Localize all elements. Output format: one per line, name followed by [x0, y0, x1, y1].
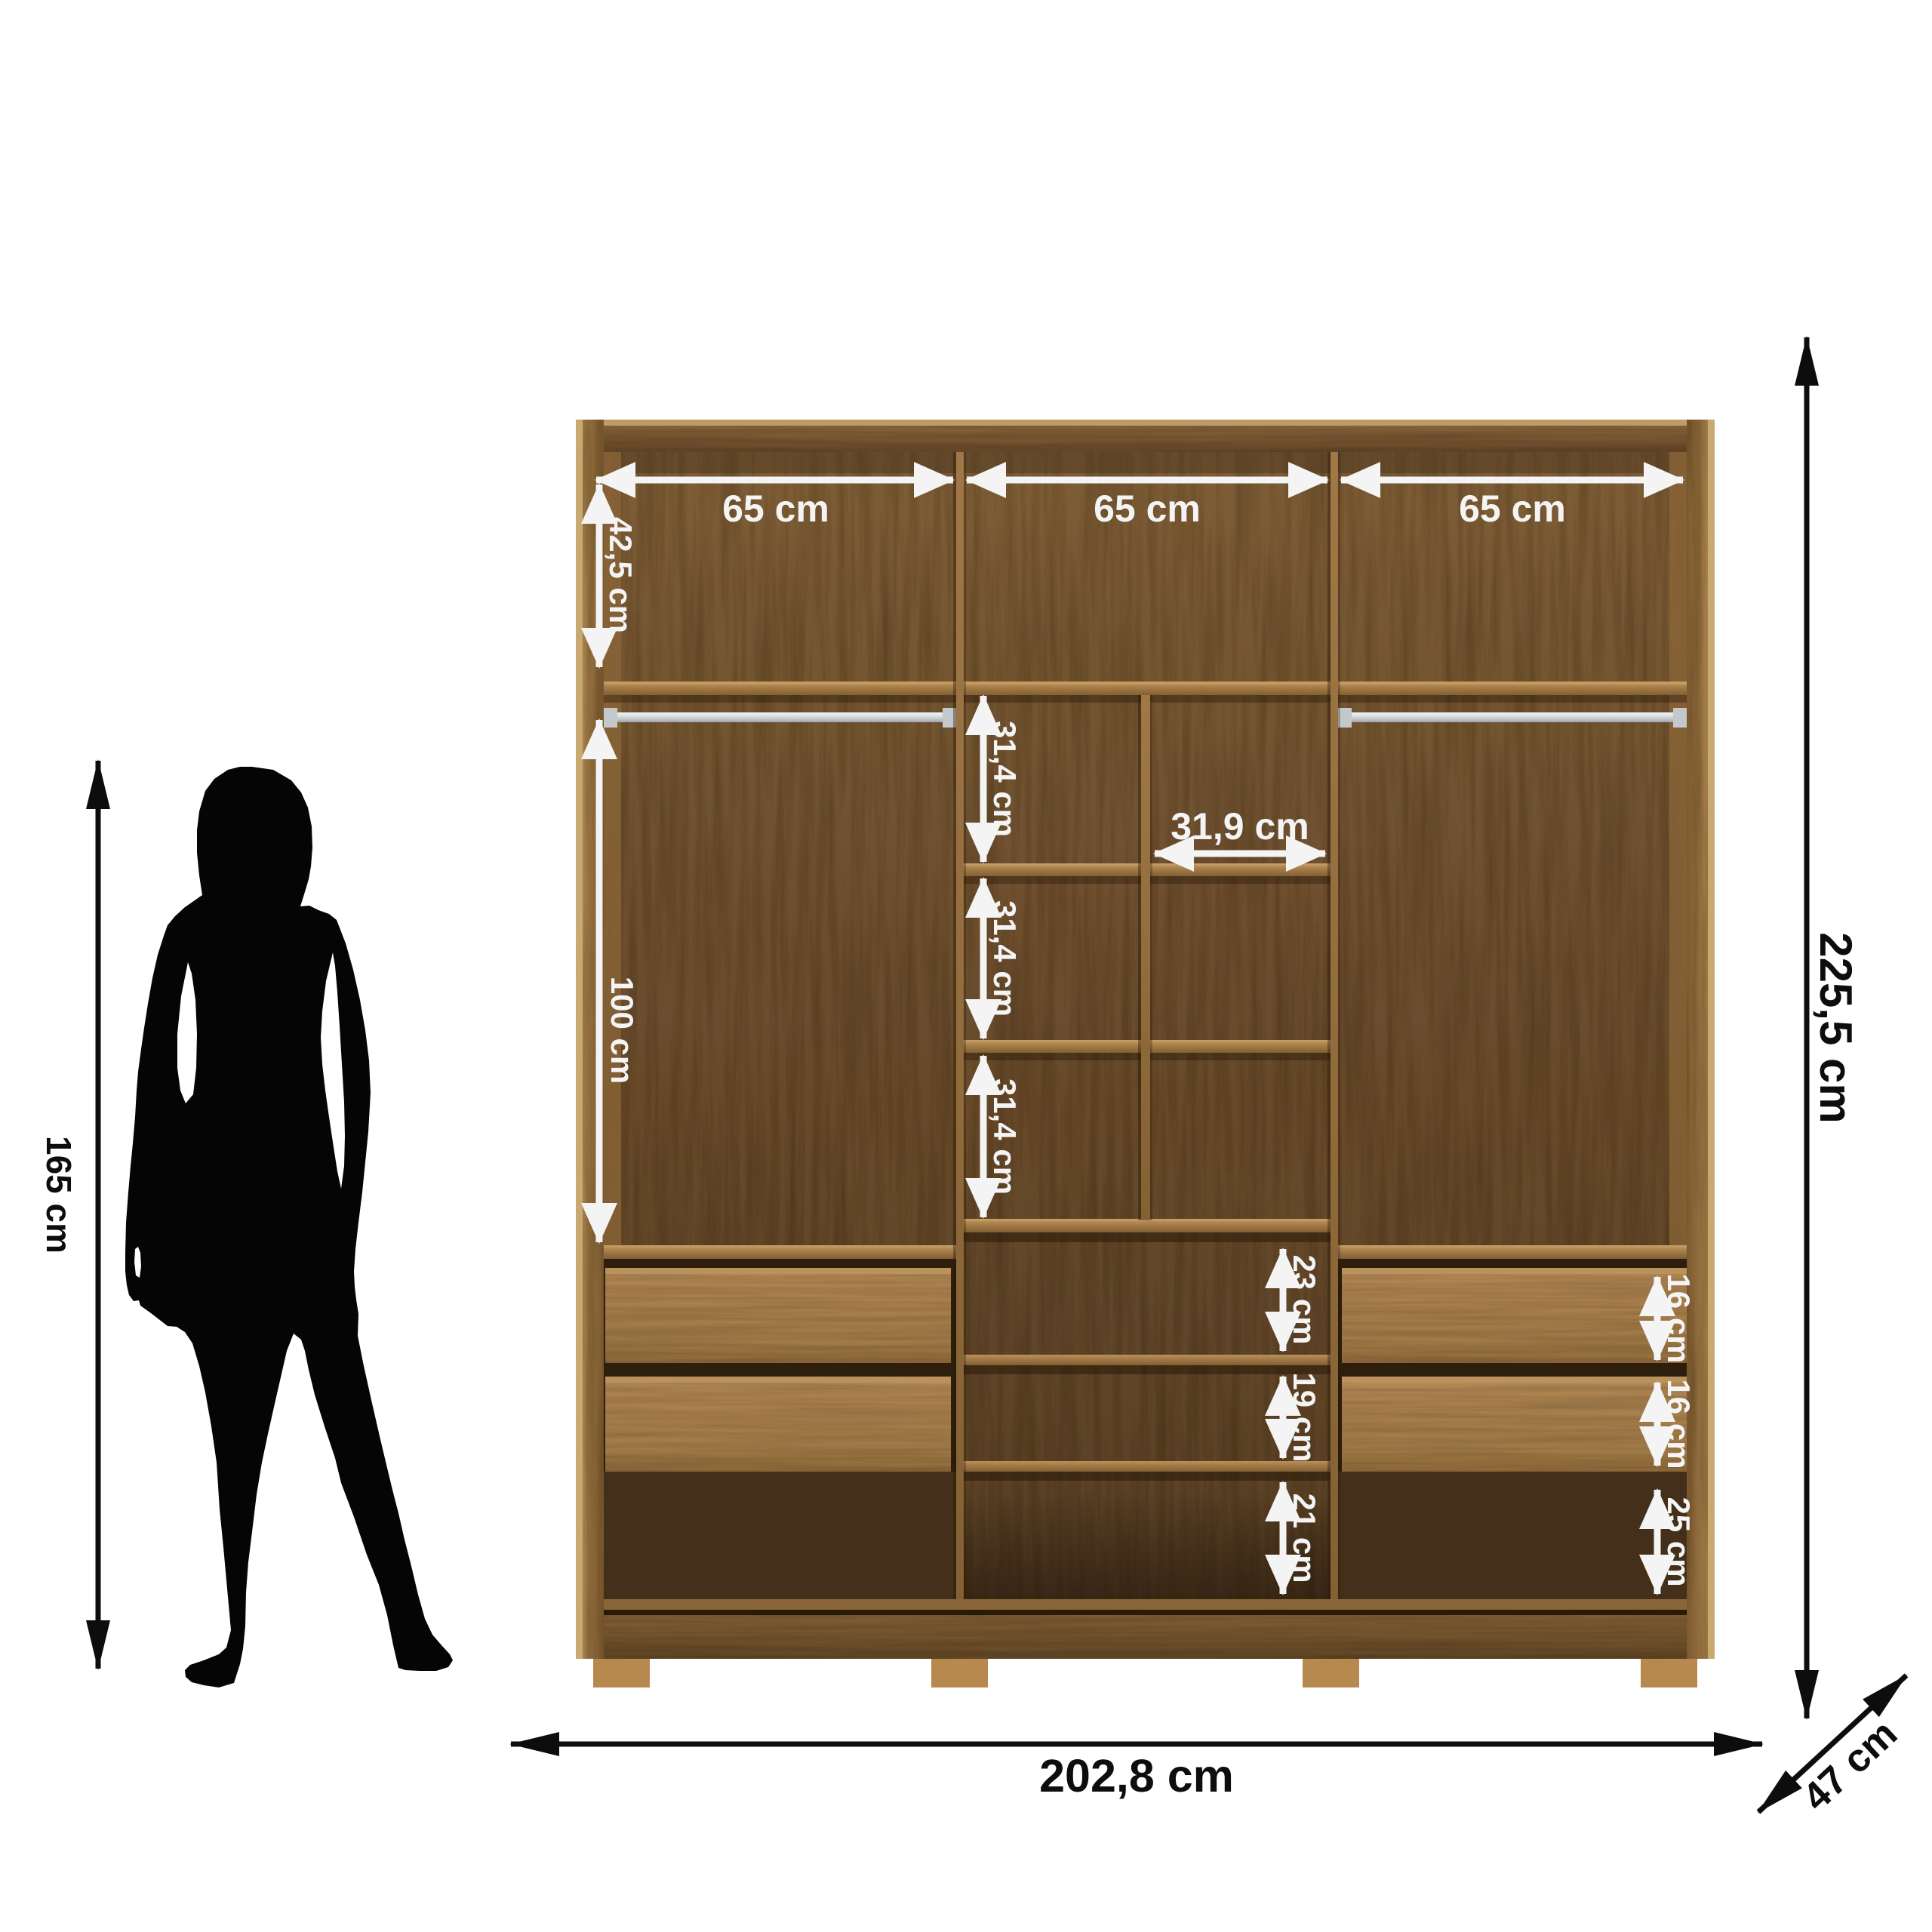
svg-text:65 cm: 65 cm: [1094, 488, 1201, 530]
svg-text:31,4 cm: 31,4 cm: [987, 721, 1023, 837]
svg-text:31,4 cm: 31,4 cm: [987, 1078, 1023, 1195]
svg-text:31,9 cm: 31,9 cm: [1171, 805, 1309, 848]
svg-text:165 cm: 165 cm: [39, 1136, 78, 1254]
svg-text:16 cm: 16 cm: [1661, 1273, 1697, 1363]
svg-text:225,5 cm: 225,5 cm: [1810, 932, 1861, 1124]
svg-text:202,8 cm: 202,8 cm: [1039, 1750, 1234, 1801]
svg-text:65 cm: 65 cm: [1459, 488, 1566, 530]
svg-text:21 cm: 21 cm: [1287, 1493, 1322, 1583]
svg-text:31,4 cm: 31,4 cm: [987, 900, 1023, 1017]
svg-text:25 cm: 25 cm: [1661, 1497, 1697, 1586]
svg-text:65 cm: 65 cm: [722, 488, 829, 530]
svg-text:16 cm: 16 cm: [1661, 1379, 1697, 1469]
svg-text:42,5 cm: 42,5 cm: [603, 517, 638, 633]
svg-text:19 cm: 19 cm: [1287, 1372, 1322, 1462]
svg-text:100 cm: 100 cm: [605, 977, 640, 1084]
svg-text:23 cm: 23 cm: [1287, 1254, 1322, 1344]
